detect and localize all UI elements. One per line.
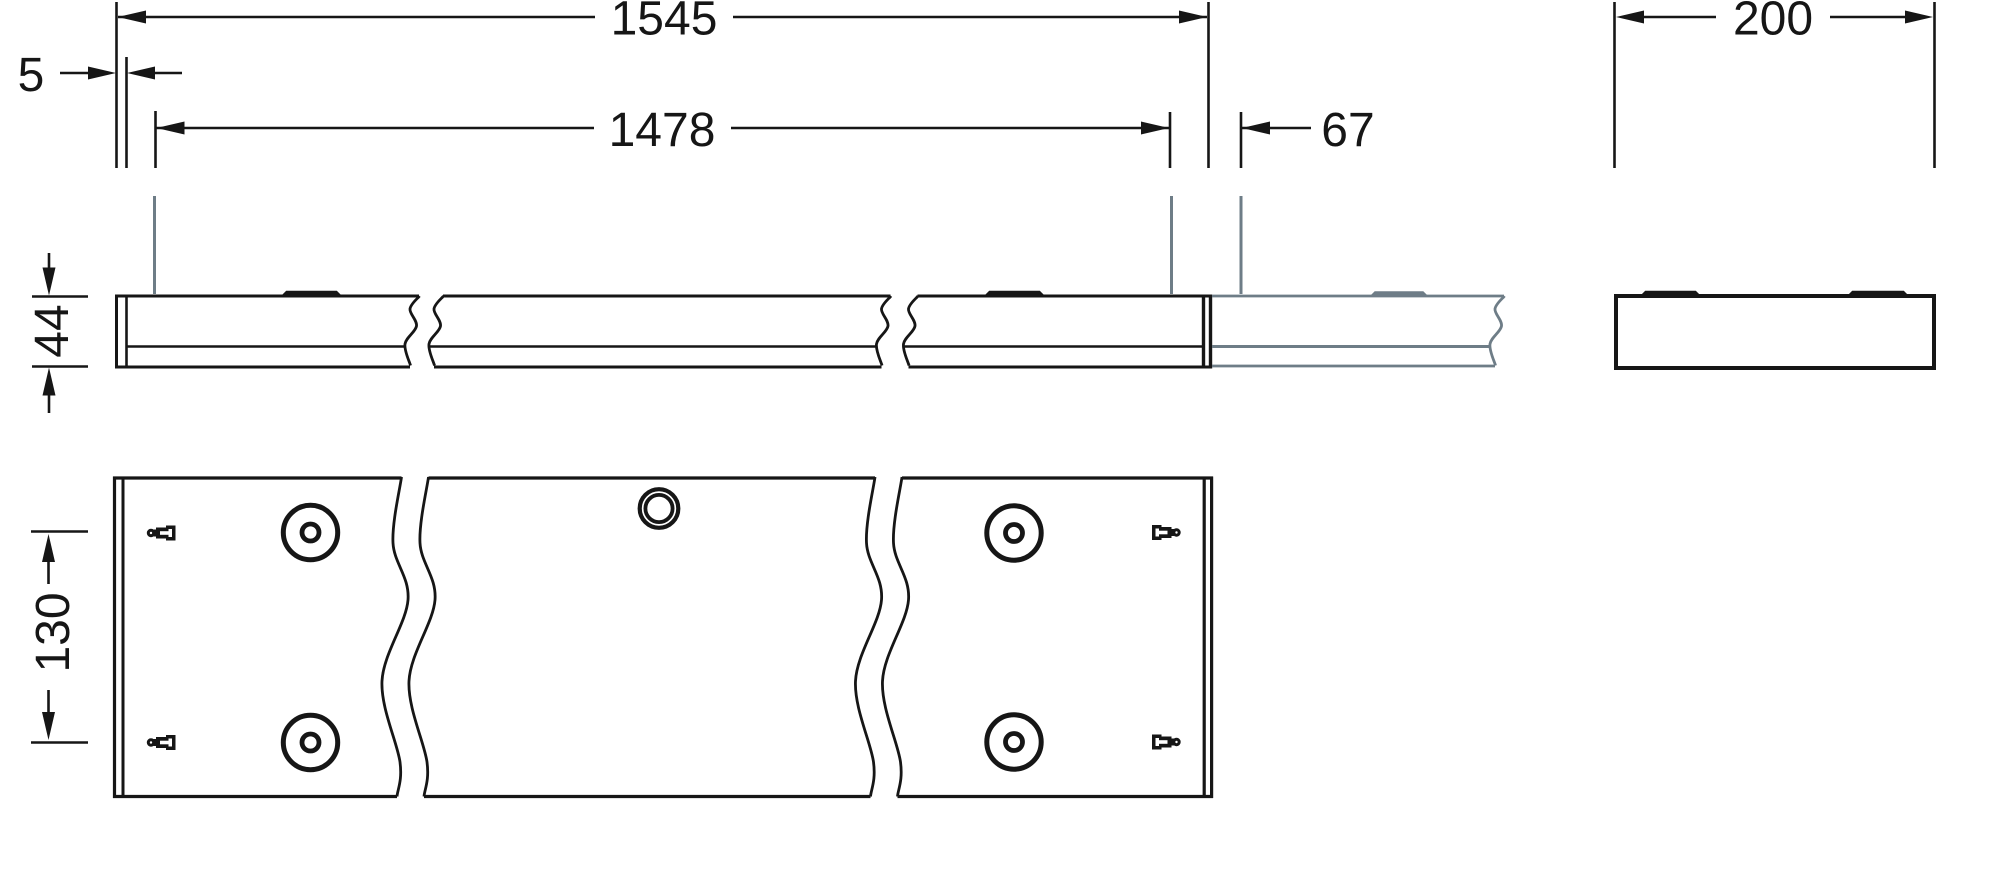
svg-text:44: 44 bbox=[26, 304, 79, 357]
svg-text:1478: 1478 bbox=[609, 104, 716, 157]
svg-text:200: 200 bbox=[1733, 0, 1813, 46]
svg-text:5: 5 bbox=[18, 49, 45, 102]
svg-text:67: 67 bbox=[1321, 104, 1374, 157]
svg-text:130: 130 bbox=[27, 592, 80, 672]
svg-text:1545: 1545 bbox=[611, 0, 718, 46]
